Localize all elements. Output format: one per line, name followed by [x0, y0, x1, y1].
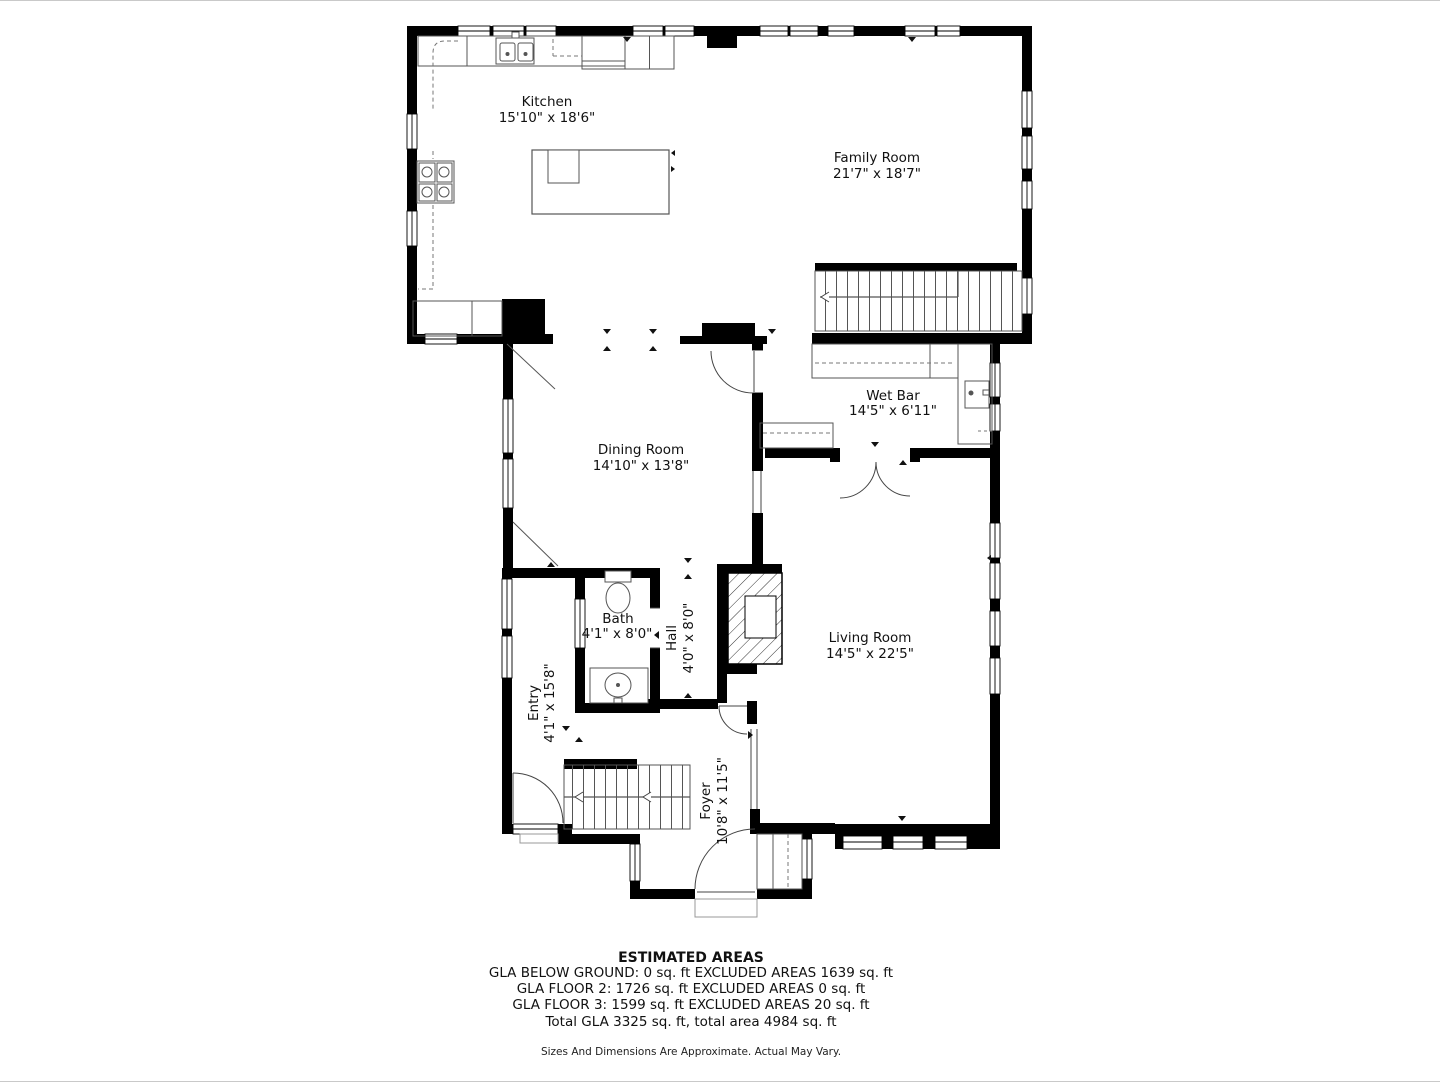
- room-label-hall: Hall: [664, 625, 680, 651]
- floorplan-page: Kitchen 15'10" x 18'6" Family Room 21'7"…: [0, 0, 1440, 1082]
- floor-plan: Kitchen 15'10" x 18'6" Family Room 21'7"…: [0, 1, 1440, 1081]
- kitchen-sink: [496, 32, 534, 64]
- closet-door-arc: [719, 706, 747, 734]
- room-dims-kitchen: 15'10" x 18'6": [499, 110, 596, 126]
- kitchen-bottom-counter: [413, 301, 502, 336]
- room-label-wetbar: Wet Bar: [866, 388, 920, 404]
- room-dims-foyer: 10'8" x 11'5": [715, 757, 731, 845]
- areas-line-2: GLA FLOOR 2: 1726 sq. ft EXCLUDED AREAS …: [517, 981, 866, 997]
- room-label-living: Living Room: [829, 630, 912, 646]
- room-label-family: Family Room: [834, 150, 920, 166]
- areas-line-1: GLA BELOW GROUND: 0 sq. ft EXCLUDED AREA…: [489, 965, 893, 981]
- room-label-bath: Bath: [602, 611, 633, 627]
- room-label-foyer: Foyer: [698, 782, 714, 820]
- room-dims-dining: 14'10" x 13'8": [593, 458, 690, 474]
- room-dims-bath: 4'1" x 8'0": [582, 626, 653, 642]
- corner-diagonals: [507, 344, 558, 566]
- areas-title: ESTIMATED AREAS: [618, 950, 764, 966]
- toilet-tank: [605, 571, 631, 582]
- room-label-entry: Entry: [526, 685, 542, 721]
- room-label-kitchen: Kitchen: [522, 94, 573, 110]
- living-double-door-left: [840, 462, 876, 498]
- estimated-areas-block: ESTIMATED AREAS GLA BELOW GROUND: 0 sq. …: [489, 950, 893, 1058]
- wet-bar-sink: [965, 381, 989, 408]
- room-dims-wetbar: 14'5" x 6'11": [849, 403, 937, 419]
- dining-door-arc: [711, 351, 753, 393]
- foyer-closet: [757, 834, 802, 889]
- range-stove: [417, 161, 454, 203]
- kitchen-island: [532, 150, 669, 214]
- room-label-dining: Dining Room: [598, 442, 684, 458]
- entry-door-arc: [513, 773, 563, 823]
- toilet-bowl: [606, 583, 630, 613]
- areas-line-3: GLA FLOOR 3: 1599 sq. ft EXCLUDED AREAS …: [512, 997, 869, 1013]
- areas-disclaimer: Sizes And Dimensions Are Approximate. Ac…: [541, 1046, 841, 1058]
- fridge: [582, 36, 625, 69]
- room-dims-hall: 4'0" x 8'0": [681, 603, 697, 674]
- room-dims-living: 14'5" x 22'5": [826, 646, 914, 662]
- living-double-door-right: [876, 462, 910, 496]
- stairs-foyer: [564, 765, 690, 829]
- room-dims-family: 21'7" x 18'7": [833, 166, 921, 182]
- fireplace: [728, 573, 782, 664]
- areas-line-4: Total GLA 3325 sq. ft, total area 4984 s…: [544, 1014, 836, 1030]
- stairs-family-room: [815, 271, 1022, 331]
- room-dims-entry: 4'1" x 15'8": [542, 663, 558, 742]
